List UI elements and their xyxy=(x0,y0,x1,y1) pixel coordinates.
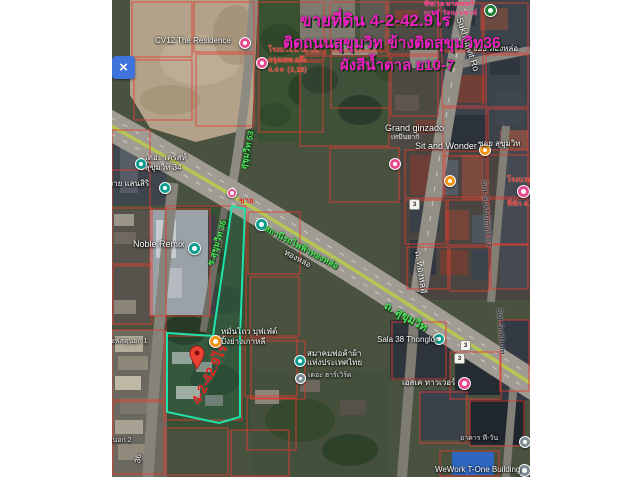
lodging-icon-right[interactable] xyxy=(517,185,530,198)
place-label-cv12[interactable]: CV12 The Residence xyxy=(155,36,231,45)
route-3-shield: 3 xyxy=(460,340,471,351)
place-label-rachaphatsadu1: ที่ราชพัสดุนอก 1 xyxy=(112,338,148,346)
route-3-shield: 3 xyxy=(454,353,465,364)
place-label-sktower[interactable]: เอสเค ทาวเวอร์ xyxy=(402,378,455,387)
place-label-sansiri[interactable]: บาย แสนสิริ xyxy=(112,179,149,188)
lodging-icon-cv12[interactable] xyxy=(239,37,251,49)
screenshot-page: 3 3 3 × CV12 The Residence โรงแรมนาดี ไป… xyxy=(0,0,640,480)
lodging-icon-nadee[interactable] xyxy=(256,57,268,69)
satellite-map-canvas[interactable]: 3 3 3 × CV12 The Residence โรงแรมนาดี ไป… xyxy=(112,0,530,477)
place-label-ginzado[interactable]: Grand ginzado xyxy=(385,123,444,133)
place-label-hotel-right-1[interactable]: โรงแรม xyxy=(507,176,530,185)
place-label-tone[interactable]: อาคาร ที-วัน xyxy=(460,435,498,443)
building-icon-tone[interactable] xyxy=(519,436,530,448)
place-label-wework[interactable]: WeWork T-One Building xyxy=(435,465,520,474)
place-label-hotel-nadee-3[interactable]: 4.4★ (3,18) xyxy=(268,66,307,75)
association-icon[interactable] xyxy=(294,355,306,367)
place-label-sala38[interactable]: Sala 38 Thonglor xyxy=(377,335,438,344)
restaurant-icon[interactable] xyxy=(444,175,456,187)
landmark-icon-peachwell[interactable] xyxy=(484,4,497,17)
place-label-manthou-1[interactable]: หมั่นโถว บุฟเฟ่ต์ xyxy=(221,327,277,336)
place-label-hotel-right-2[interactable]: ที่พัก 4.7★ xyxy=(507,200,530,209)
place-label-harvard[interactable]: เดอะ ฮาร์เวิร์ด xyxy=(308,372,351,380)
building-icon-harvard[interactable] xyxy=(295,373,306,384)
interchange-icon[interactable]: × xyxy=(112,56,135,79)
place-label-manthou-2[interactable]: ปิ้งย่างเกาหลี xyxy=(221,337,265,346)
lodging-icon-small[interactable] xyxy=(227,188,237,198)
ad-zoning-line: ผังสีน้ำตาล ย10-7 xyxy=(340,53,454,77)
road-label-soi-sukhumvit: ซอย สุขุมวิท xyxy=(478,139,521,148)
sale-tag: ขาย xyxy=(239,194,254,207)
lodging-icon-sktower[interactable] xyxy=(458,377,471,390)
place-label-crest-2[interactable]: สุขุมวิท 34 xyxy=(145,163,182,172)
place-label-rachaphatsadu2: ที่ราชพัสดุนอก 2 xyxy=(112,437,132,445)
ad-subline: ติดถนนสุขุมวิท ข้างติดสุขุมวิท36 xyxy=(283,30,501,55)
place-label-samakhom-2[interactable]: แห่งประเทศไทย xyxy=(307,358,362,367)
route-3-shield: 3 xyxy=(409,199,420,210)
road-label-soi36-part: 36 xyxy=(133,453,144,463)
condo-icon-sansiri[interactable] xyxy=(159,182,171,194)
place-label-hotel-nadee-2[interactable]: กรุงเทพ อดีเ xyxy=(268,56,307,65)
place-label-sitandwonder[interactable]: Sit and Wonder xyxy=(415,141,477,151)
place-label-crest-1[interactable]: เดอะ เครสท์ xyxy=(145,153,187,162)
condo-icon-noble[interactable] xyxy=(188,242,201,255)
place-label-samakhom-1[interactable]: สมาคมพ่อค้าผ้า xyxy=(307,349,361,358)
lodging-icon-ginzado[interactable] xyxy=(389,158,401,170)
place-label-noble[interactable]: Noble Remix xyxy=(133,239,185,249)
